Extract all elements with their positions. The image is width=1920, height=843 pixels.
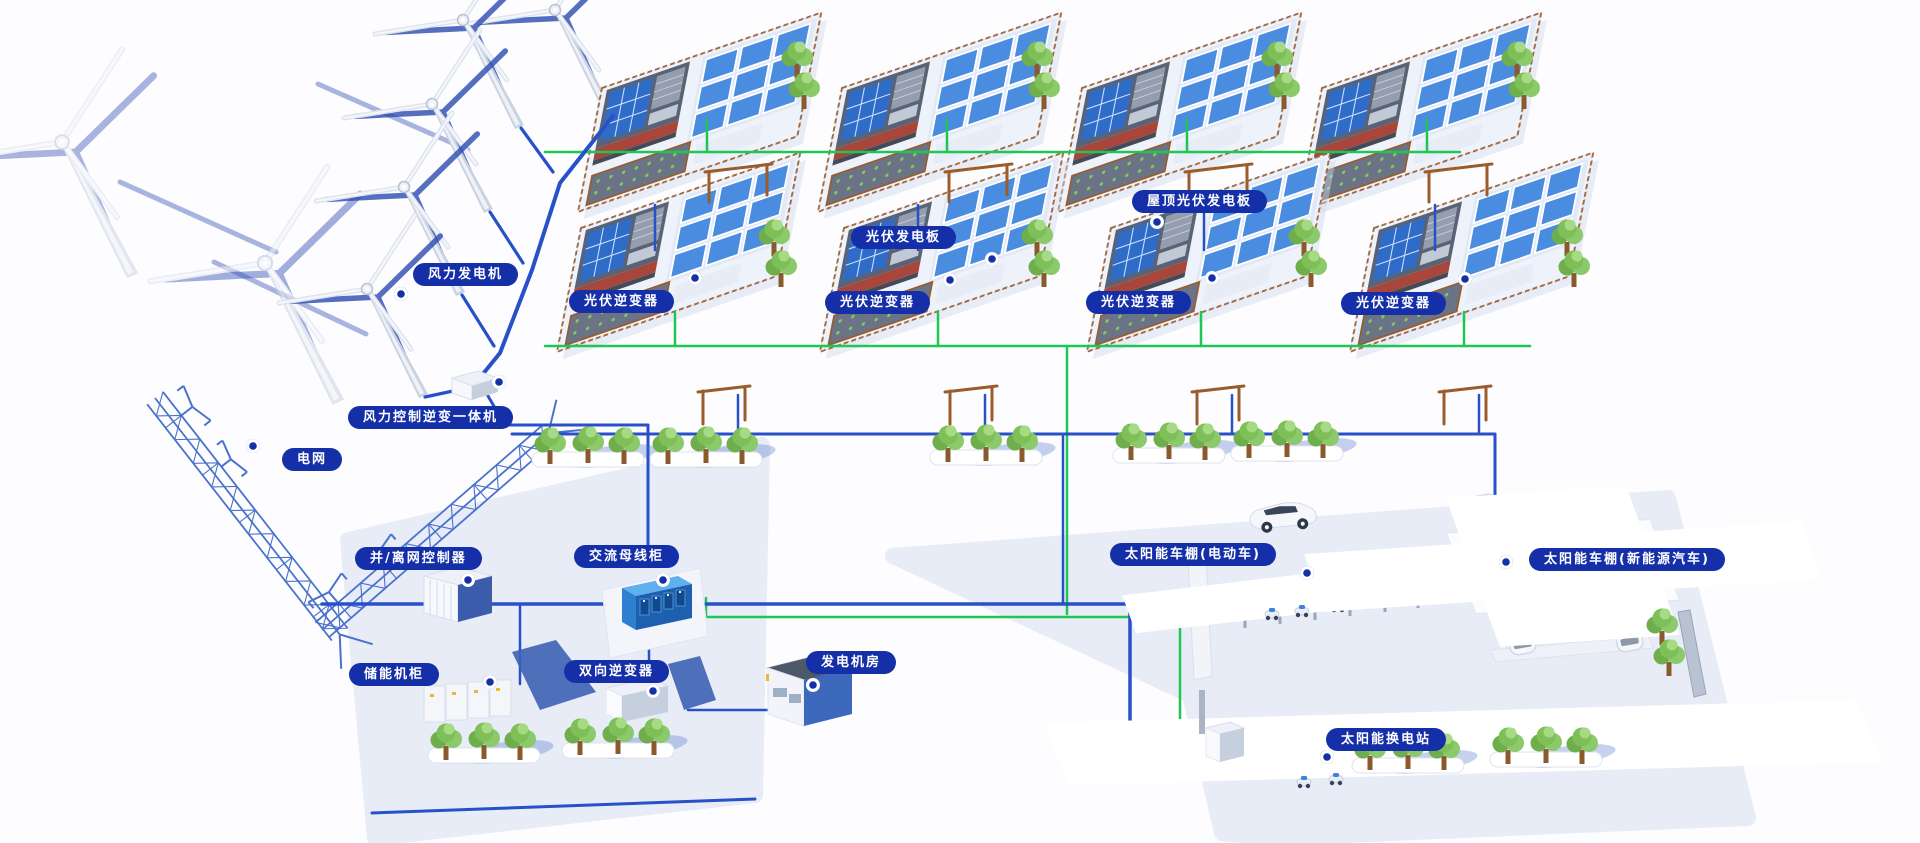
callout-solar-swap-station: 太阳能换电站 — [1326, 728, 1446, 751]
wind-turbines — [0, 0, 628, 405]
callout-pv-inverter-2: 光伏逆变器 — [825, 291, 930, 314]
callout-solar-carport-nev: 太阳能车棚(新能源汽车) — [1529, 548, 1725, 571]
energy-microgrid-illustration: 风力发电机 风力控制逆变一体机 电网 光伏发电板 屋顶光伏发电板 光伏逆变器 光… — [0, 0, 1920, 843]
marker-dot-pv-panel — [985, 252, 999, 266]
marker-dot-generator-room — [806, 678, 820, 692]
tree-rows-mid — [532, 421, 1358, 473]
callout-energy-storage-cabinet: 储能机柜 — [349, 663, 439, 686]
callout-roof-pv-panel: 屋顶光伏发电板 — [1132, 190, 1267, 213]
light-pole — [1199, 690, 1205, 734]
callout-solar-carport-ev: 太阳能车棚(电动车) — [1110, 543, 1276, 566]
marker-dot-pv-inverter-3 — [1205, 271, 1219, 285]
callout-bidirectional-inverter: 双向逆变器 — [564, 660, 669, 683]
callout-pv-inverter-1: 光伏逆变器 — [569, 290, 674, 313]
marker-dot-solar-swap-station — [1320, 750, 1334, 764]
callout-generator-room: 发电机房 — [806, 651, 896, 674]
house-compounds — [555, 10, 1601, 424]
wind-control-inverter-unit — [452, 371, 498, 400]
callout-pv-inverter-4: 光伏逆变器 — [1341, 292, 1446, 315]
scene-art — [0, 0, 1920, 843]
on-off-grid-controller-unit — [424, 567, 492, 622]
marker-dot-power-grid — [246, 439, 260, 453]
callout-power-grid: 电网 — [282, 448, 342, 471]
marker-dot-pv-inverter-1 — [688, 271, 702, 285]
marker-dot-ac-busbar-cabinet — [656, 573, 670, 587]
marker-dot-pv-inverter-4 — [1458, 272, 1472, 286]
callout-on-off-grid-controller: 并/离网控制器 — [355, 547, 482, 570]
marker-dot-wind-turbine — [394, 287, 408, 301]
marker-dot-solar-carport-nev — [1499, 555, 1513, 569]
marker-dot-roof-pv-panel — [1150, 215, 1164, 229]
callout-pv-inverter-3: 光伏逆变器 — [1086, 291, 1191, 314]
marker-dot-energy-storage-cabinet — [483, 675, 497, 689]
callout-pv-panel: 光伏发电板 — [851, 226, 956, 249]
callout-wind-control-inverter: 风力控制逆变一体机 — [348, 406, 513, 429]
callout-ac-busbar-cabinet: 交流母线柜 — [574, 545, 679, 568]
marker-dot-solar-carport-ev — [1300, 566, 1314, 580]
marker-dot-on-off-grid-controller — [461, 573, 475, 587]
marker-dot-bidirectional-inverter — [646, 684, 660, 698]
marker-dot-wind-control-inverter — [492, 375, 506, 389]
callout-wind-turbine: 风力发电机 — [413, 263, 518, 286]
marker-dot-pv-inverter-2 — [943, 273, 957, 287]
